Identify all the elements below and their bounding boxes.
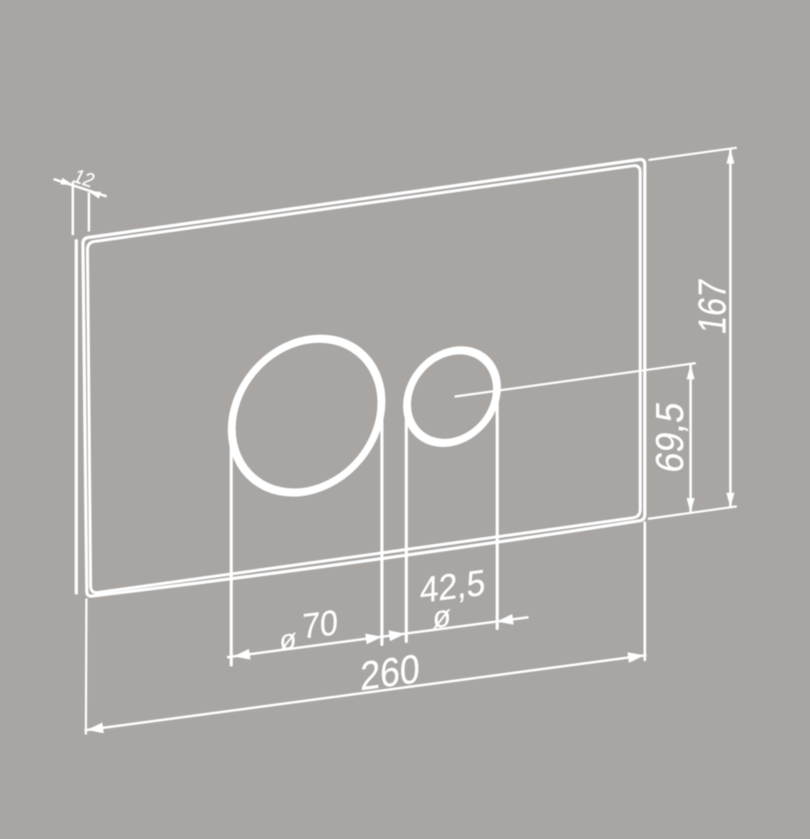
svg-text:70: 70 <box>302 603 338 647</box>
svg-text:ø: ø <box>279 623 296 656</box>
svg-text:167: 167 <box>692 277 735 337</box>
svg-text:260: 260 <box>360 646 419 700</box>
svg-text:ø: ø <box>433 600 452 635</box>
svg-text:69,5: 69,5 <box>649 399 692 475</box>
svg-text:42,5: 42,5 <box>420 561 486 611</box>
